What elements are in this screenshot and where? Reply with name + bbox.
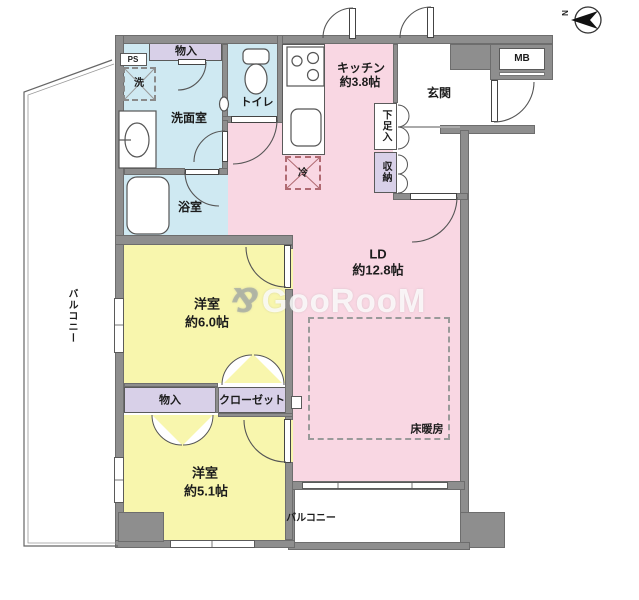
hall-storage-label: 収納	[380, 161, 390, 183]
kitchen-counter	[282, 44, 325, 155]
bedroom2-name-label: 洋室	[192, 467, 218, 480]
wall-balcony-bottom	[288, 542, 470, 550]
upper-closet-door-leaf	[178, 59, 206, 65]
bathroom-door-leaf	[185, 169, 219, 175]
bedroom2-door-leaf	[284, 419, 291, 463]
hall-storage-bifold	[398, 155, 408, 193]
washroom-label: 洗面室	[171, 112, 207, 124]
fridge-label: 冷	[298, 169, 308, 179]
ld-size-label: 約12.8帖	[352, 264, 403, 277]
wall-toilet-left	[222, 44, 228, 120]
closet-label: クローゼット	[219, 396, 285, 407]
ld-balcony-window	[302, 482, 448, 489]
shoe-cabinet-label: 下足入	[380, 110, 390, 143]
kitchen-size-label: 約3.8帖	[340, 76, 381, 88]
bedroom2-south-window	[170, 540, 255, 548]
wall-kitchen-entrance	[393, 44, 398, 103]
upper-closet-label: 物入	[175, 47, 197, 58]
balcony-left-label: バルコニー	[66, 289, 76, 344]
toilet-area	[228, 44, 277, 120]
wall-right	[460, 130, 469, 518]
wall-top	[115, 35, 553, 44]
mb-slot	[499, 72, 545, 76]
bedroom1-door-leaf	[284, 245, 291, 288]
washroom-door-leaf	[222, 131, 228, 162]
ld-name-label: LD	[369, 248, 386, 261]
floor-plan: 物入 PS 洗 洗面室 トイレ 浴室 キッチン 約3.8帖 玄関 MB 下足入 …	[0, 0, 639, 600]
entrance-door-leaf	[491, 80, 498, 122]
bathroom-label: 浴室	[178, 201, 202, 213]
ld-door-leaf	[410, 193, 457, 200]
wall-bottom-left-step	[118, 512, 164, 542]
wall-bedrooms-right-c	[285, 462, 293, 540]
wall-storage-strip-top	[124, 383, 218, 387]
wall-washroom-bath-a	[124, 168, 185, 175]
mb-label: MB	[514, 54, 530, 64]
entrance-step-line	[398, 126, 460, 128]
compass-north-label: N	[562, 10, 570, 16]
bathroom-area	[124, 175, 228, 243]
wall-feature-box	[291, 396, 302, 409]
washer-label: 洗	[134, 79, 144, 89]
floor-heating-label: 床暖房	[411, 425, 444, 436]
bedroom1-size-label: 約6.0帖	[185, 316, 229, 329]
toilet-door-leaf	[231, 116, 277, 123]
kitchen-name-label: キッチン	[337, 62, 385, 74]
wall-washroom-bath-b	[219, 168, 228, 175]
wall-closet-strip-bottom	[218, 413, 293, 417]
floor-heating-box	[308, 317, 450, 440]
ps-label: PS	[128, 56, 139, 64]
entrance-label: 玄関	[427, 87, 451, 99]
bedroom1-name-label: 洋室	[194, 298, 220, 311]
balcony-bottom-label: バルコニー	[286, 514, 336, 524]
entrance-door-arc	[494, 82, 534, 122]
bedroom2-size-label: 約5.1帖	[184, 485, 228, 498]
wall-bedroom1-top	[115, 235, 293, 245]
corridor-door2-leaf	[427, 7, 434, 38]
bedroom1-window	[114, 298, 124, 353]
compass-arrow-icon	[571, 11, 598, 29]
corridor-door1-leaf	[349, 8, 356, 39]
toilet-label: トイレ	[241, 98, 274, 109]
compass	[571, 7, 601, 33]
bedroom-storage-label: 物入	[159, 396, 181, 407]
bedroom2-window	[114, 457, 124, 503]
